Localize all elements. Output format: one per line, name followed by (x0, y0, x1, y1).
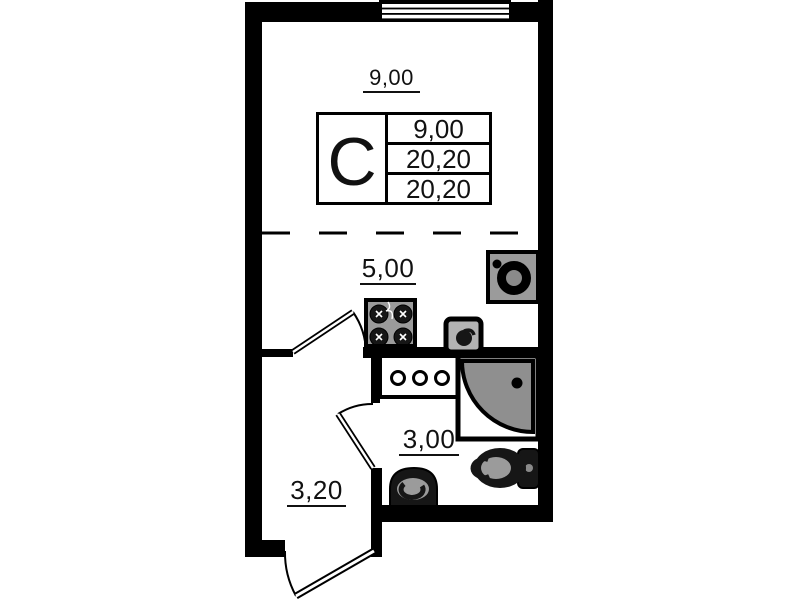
floorplan-page: 9,00 5,00 3,00 3,20 С 9,00 20,20 20,20 (0, 0, 799, 600)
kitchen-sink-icon (446, 319, 481, 352)
shower-cabin-icon (458, 356, 538, 439)
stamp-row: 9,00 (388, 115, 489, 145)
room-area-label: 9,00 (363, 67, 420, 93)
kitchen-area-label: 5,00 (360, 255, 416, 285)
bathroom-door-icon (338, 404, 373, 468)
stove-icon (366, 300, 415, 352)
stamp-values: 9,00 20,20 20,20 (388, 115, 489, 202)
stamp-letter: С (319, 115, 388, 202)
stamp-table: С 9,00 20,20 20,20 (316, 112, 492, 205)
window-icon (379, 0, 511, 22)
washing-machine-icon (488, 252, 538, 302)
washbasin-icon (390, 468, 437, 506)
hall-area-label: 3,20 (287, 477, 346, 507)
stamp-row: 20,20 (388, 145, 489, 175)
stamp-row: 20,20 (388, 175, 489, 202)
entry-door-icon (285, 551, 374, 596)
bathroom-area-label: 3,00 (399, 426, 459, 456)
toilet-icon (472, 448, 539, 488)
interior-door-icon (293, 312, 366, 353)
counter-with-holes-icon (380, 356, 458, 397)
